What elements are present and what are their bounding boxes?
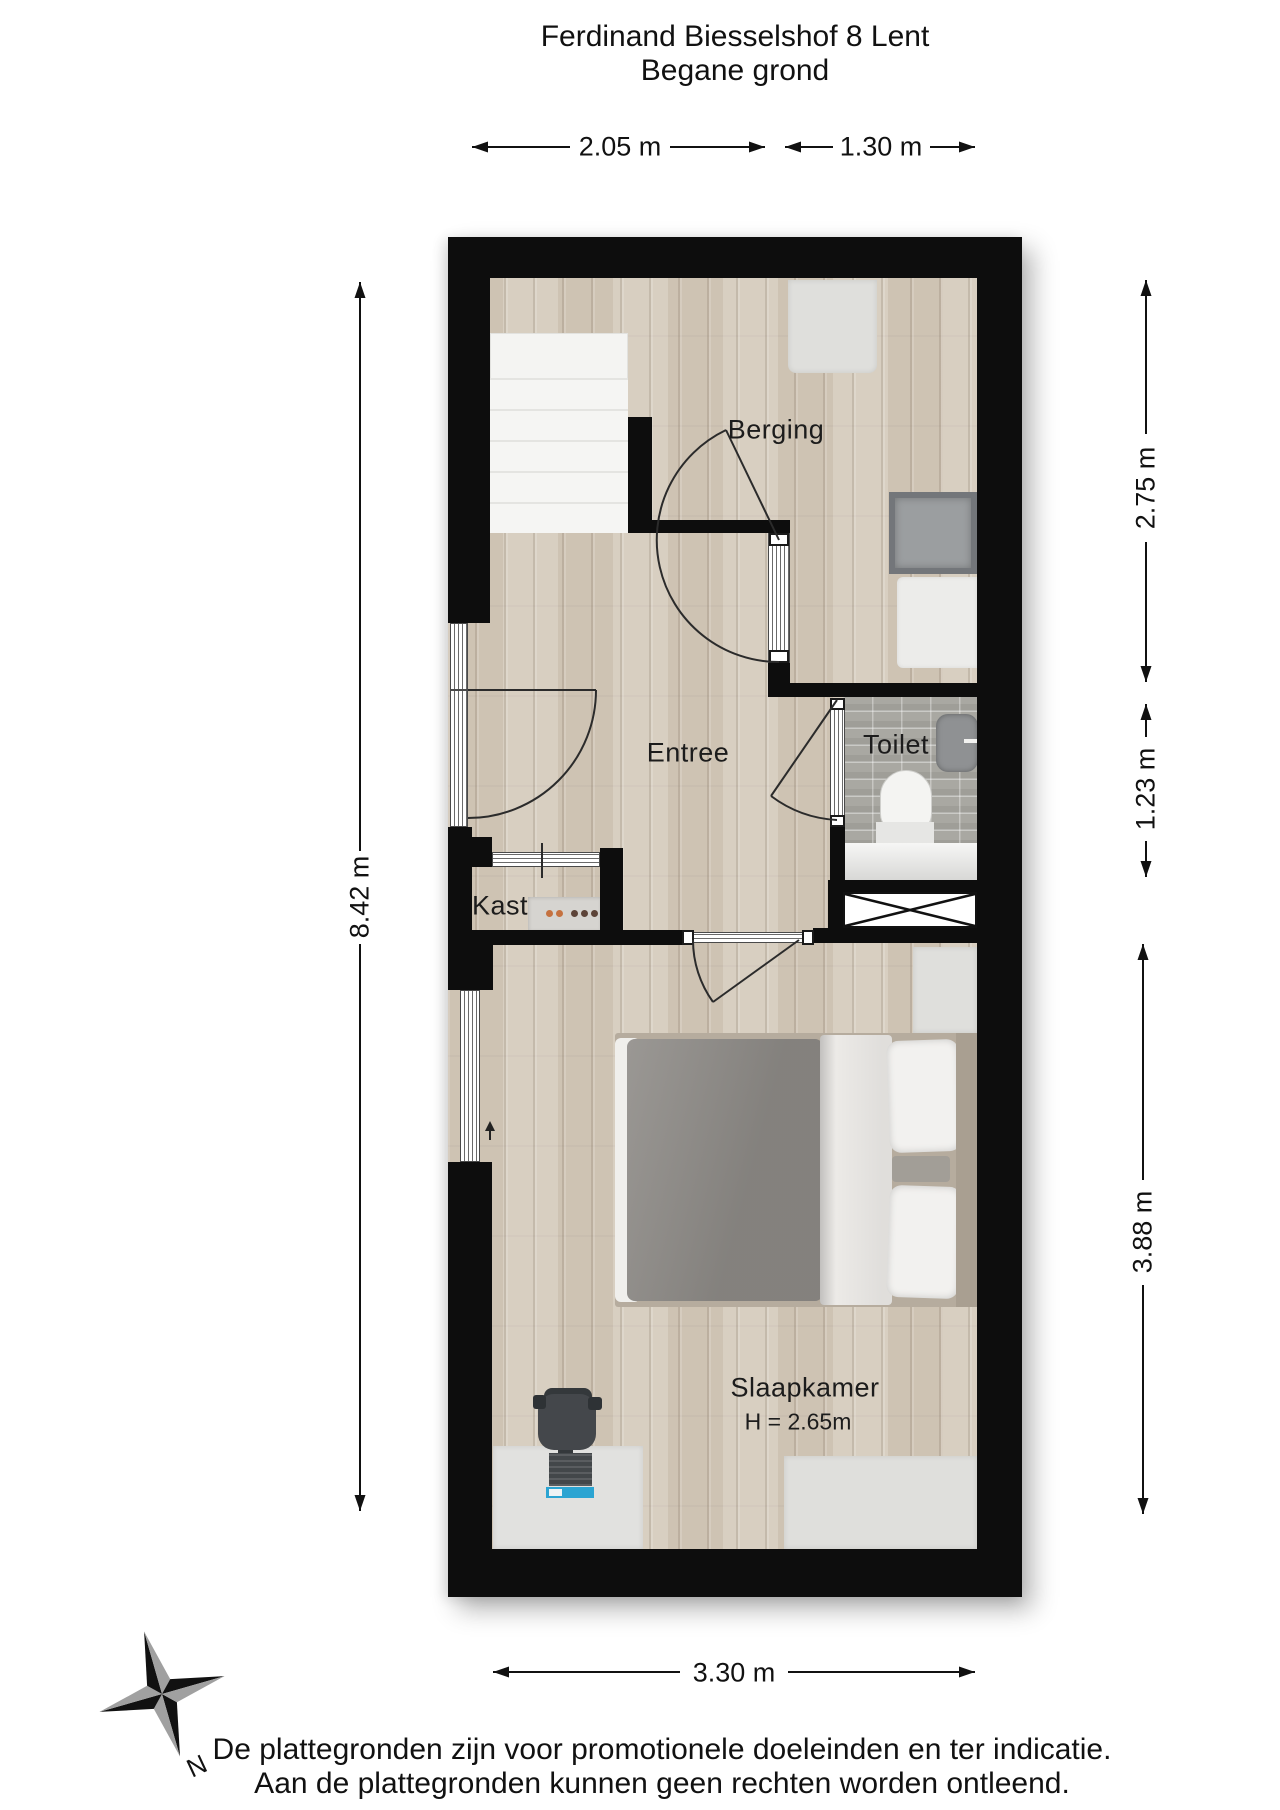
pillow-gap <box>892 1156 950 1182</box>
chair-armrest <box>533 1395 546 1409</box>
door-frame-cap <box>830 698 845 710</box>
storage-cabinet <box>788 280 877 373</box>
keyboard-detail <box>549 1489 562 1496</box>
pillow <box>886 1185 962 1299</box>
shoe-dot <box>546 910 553 917</box>
berging-door-frame <box>768 533 790 663</box>
disclaimer-line-2: Aan de plattegronden kunnen geen rechten… <box>213 1767 1112 1801</box>
wall-toilet-bottom <box>830 880 977 892</box>
wall-stairwell <box>628 417 652 533</box>
bedroom-cabinet <box>913 947 977 1033</box>
compass-rose-icon: N <box>100 1632 225 1784</box>
washbasin <box>936 714 978 772</box>
wall-toilet-left <box>830 827 845 880</box>
shoe-dot <box>556 910 563 917</box>
washing-machine <box>889 492 977 574</box>
kast-opening-frame <box>492 852 600 867</box>
toilet-cistern <box>876 822 934 844</box>
shoe-dot <box>581 910 588 917</box>
toilet-door-frame <box>830 698 845 827</box>
dresser <box>784 1456 977 1549</box>
shoe-dot <box>591 910 598 917</box>
page-subtitle: Begane grond <box>641 54 830 88</box>
chair-armrest <box>588 1397 602 1410</box>
door-frame-cap <box>769 533 789 546</box>
dimension-top-right: 1.30 m <box>840 132 923 163</box>
room-label-berging: Berging <box>728 415 825 446</box>
shaft-x-box <box>843 892 977 928</box>
wall-left-lower <box>448 1162 492 1552</box>
bed-headboard <box>956 1033 977 1307</box>
wall-kast-bottom <box>472 930 693 945</box>
slaapkamer-door-frame <box>693 932 803 943</box>
dimension-right-bottom: 3.88 m <box>1128 1191 1159 1274</box>
bed-sheet-fold <box>820 1035 892 1305</box>
stair-treads <box>490 378 628 533</box>
pillow <box>886 1039 962 1153</box>
door-frame-cap <box>802 930 814 945</box>
dimension-right-top: 2.75 m <box>1131 447 1162 530</box>
door-frame-cap <box>830 815 845 827</box>
window-frame-slaapkamer <box>460 990 480 1162</box>
room-label-toilet: Toilet <box>863 730 929 761</box>
wall-kast-left-block <box>448 837 492 867</box>
wall-right <box>977 237 1022 1597</box>
room-height-note: H = 2.65m <box>745 1409 852 1436</box>
dimension-bottom: 3.30 m <box>693 1658 776 1689</box>
bed-duvet <box>627 1039 823 1301</box>
shoe-dot <box>571 910 578 917</box>
washing-machine-drum <box>895 498 971 568</box>
wall-left-upper <box>448 237 490 623</box>
door-frame-cap <box>682 930 694 945</box>
wall-bottom <box>448 1549 1022 1597</box>
room-label-entree: Entree <box>647 738 730 769</box>
dimension-left: 8.42 m <box>345 856 376 939</box>
wall-slaapkamer-top <box>813 928 1022 943</box>
page-title: Ferdinand Biesselshof 8 Lent <box>541 20 930 54</box>
compass-north-label: N <box>182 1748 212 1783</box>
door-frame-cap <box>769 650 789 663</box>
utility-cabinet <box>897 577 977 668</box>
staircase <box>490 333 628 533</box>
toilet-shelf <box>845 843 978 880</box>
floorplan-page: Ferdinand Biesselshof 8 Lent Begane gron… <box>0 0 1280 1810</box>
dimension-right-middle: 1.23 m <box>1131 748 1162 831</box>
room-label-kast: Kast <box>472 891 528 922</box>
room-label-slaapkamer: Slaapkamer <box>730 1373 879 1404</box>
dimension-top-left: 2.05 m <box>579 132 662 163</box>
window-frame-sidelight <box>450 623 468 690</box>
wall-berging-toilet <box>768 683 1022 697</box>
wall-below-stairs <box>628 520 790 533</box>
disclaimer-text: De plattegronden zijn voor promotionele … <box>213 1733 1112 1801</box>
front-door-frame <box>450 690 468 827</box>
disclaimer-line-1: De plattegronden zijn voor promotionele … <box>213 1733 1112 1767</box>
laptop <box>549 1453 592 1486</box>
wall-top <box>448 237 1022 278</box>
